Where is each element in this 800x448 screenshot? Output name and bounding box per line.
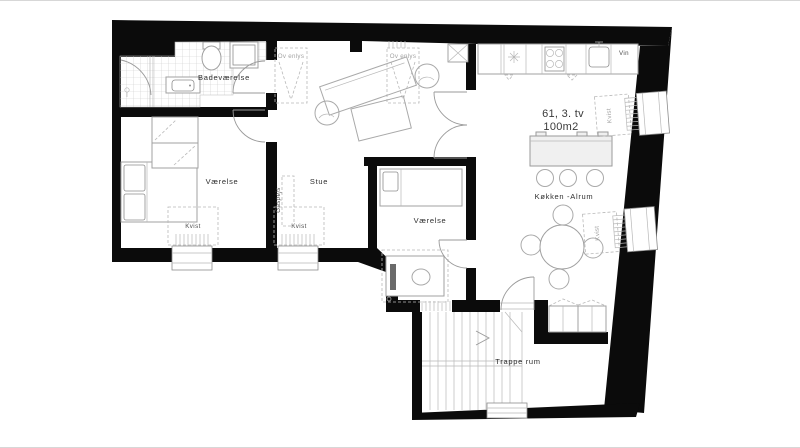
skylight-1: Ov enlys: [275, 48, 307, 103]
dining-chair-north: [553, 205, 573, 225]
living-label: Stue: [310, 177, 328, 186]
dormer1-hatch: [176, 234, 208, 246]
kitchen-island: [530, 132, 612, 166]
dining-table: [540, 225, 584, 269]
bottom-left-wall: [112, 248, 364, 262]
single-bed: [380, 169, 462, 206]
bedroom1-label: Værelse: [206, 177, 239, 186]
dormer-right2-label: Kvist: [593, 225, 601, 240]
bar-stool-3: [587, 170, 604, 187]
stairwell-west-wall: [412, 312, 422, 417]
wardrobe: [152, 117, 198, 168]
coffee-table: [351, 96, 411, 141]
cabinet-swing-marks: [505, 75, 577, 80]
dormer2-window: [278, 246, 318, 270]
living-kitchen-wall-seg2: [466, 158, 476, 240]
skylight2-label: Ov enlys: [390, 53, 416, 60]
threshold-hatch: [422, 301, 450, 311]
living-table: [320, 57, 417, 115]
bedroom2-west-wall: [368, 157, 377, 252]
stairwell: Trappe rum: [422, 312, 541, 418]
dormer-right1-label: Kvist: [605, 108, 613, 123]
fireplace-label: Gaspejs: [275, 187, 282, 213]
dormer-right-2: Kvist: [582, 207, 657, 256]
stairwell-window: [487, 403, 527, 418]
bathroom-bedroom-divider-wall: [112, 107, 268, 117]
bedroom2-bottom-wall-b: [452, 300, 476, 312]
bedroom-1: Værelse: [121, 110, 265, 222]
bathroom-label: Badeværelse: [198, 73, 250, 82]
kitchen-counter: Vin: [478, 42, 638, 80]
shaft-box: [448, 44, 468, 62]
left-wall: [112, 40, 121, 262]
niche-south-wall: [534, 332, 608, 344]
unit-title: 61, 3. tv: [542, 108, 584, 120]
dormer-bottom-2: Kvist: [274, 207, 324, 270]
entrance-door: [500, 277, 534, 310]
dining-chair-west: [521, 235, 541, 255]
unit-area: 100m2: [543, 121, 578, 133]
bathroom-vanity: [166, 77, 200, 93]
bar-stool-1: [537, 170, 554, 187]
desk: [382, 250, 448, 302]
dormer1-label: Kvist: [185, 223, 200, 230]
skylight1-label: Ov enlys: [278, 53, 304, 60]
floor-plan: Badeværelse Værelse Kvist: [0, 0, 800, 448]
kitchen-label: Køkken -Alrum: [535, 192, 594, 201]
dining-chair-south: [549, 269, 569, 289]
closet-niche: [549, 299, 606, 332]
dormer1-window: [172, 246, 212, 270]
french-doors: [434, 92, 467, 158]
dining-set: [521, 205, 603, 289]
kitchen-bottom-wall: [476, 300, 500, 312]
bedroom2-label: Værelse: [414, 216, 447, 225]
stove: [545, 47, 564, 71]
floor-plan-page: Badeværelse Værelse Kvist: [0, 0, 800, 448]
toilet: [202, 42, 221, 70]
stairwell-label: Trappe rum: [495, 357, 541, 366]
bar-stool-2: [560, 170, 577, 187]
double-bed: [121, 162, 197, 222]
bathroom-cabinet-inner: [233, 45, 255, 65]
dormer2-hatch: [282, 234, 314, 246]
wine-cooler-label: Vin: [619, 50, 629, 57]
bedroom-2: Værelse: [380, 169, 467, 311]
gas-fireplace: Gaspejs: [275, 176, 294, 226]
